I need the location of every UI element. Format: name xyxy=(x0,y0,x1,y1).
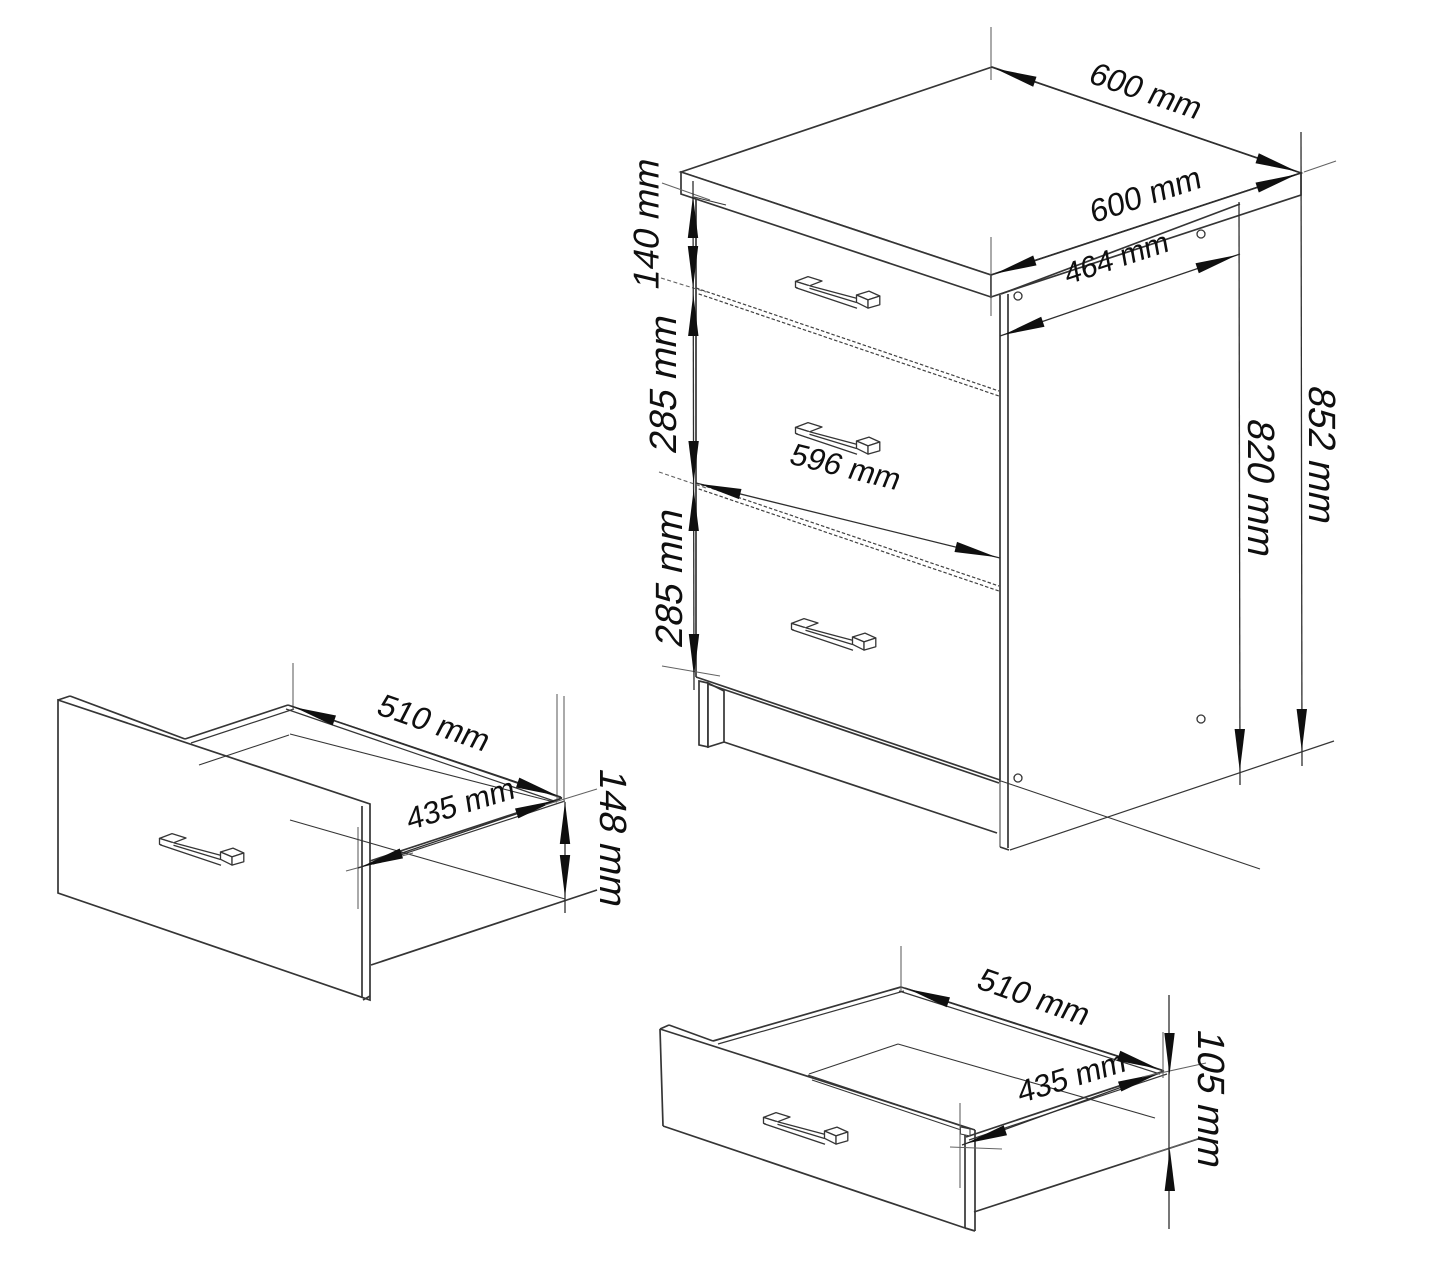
svg-text:285 mm: 285 mm xyxy=(642,310,684,457)
svg-text:148 mm: 148 mm xyxy=(591,765,633,912)
svg-text:852 mm: 852 mm xyxy=(1300,382,1342,529)
svg-text:820 mm: 820 mm xyxy=(1239,415,1281,562)
svg-text:140 mm: 140 mm xyxy=(626,154,666,293)
svg-text:105 mm: 105 mm xyxy=(1189,1026,1231,1173)
svg-text:285 mm: 285 mm xyxy=(648,504,690,651)
